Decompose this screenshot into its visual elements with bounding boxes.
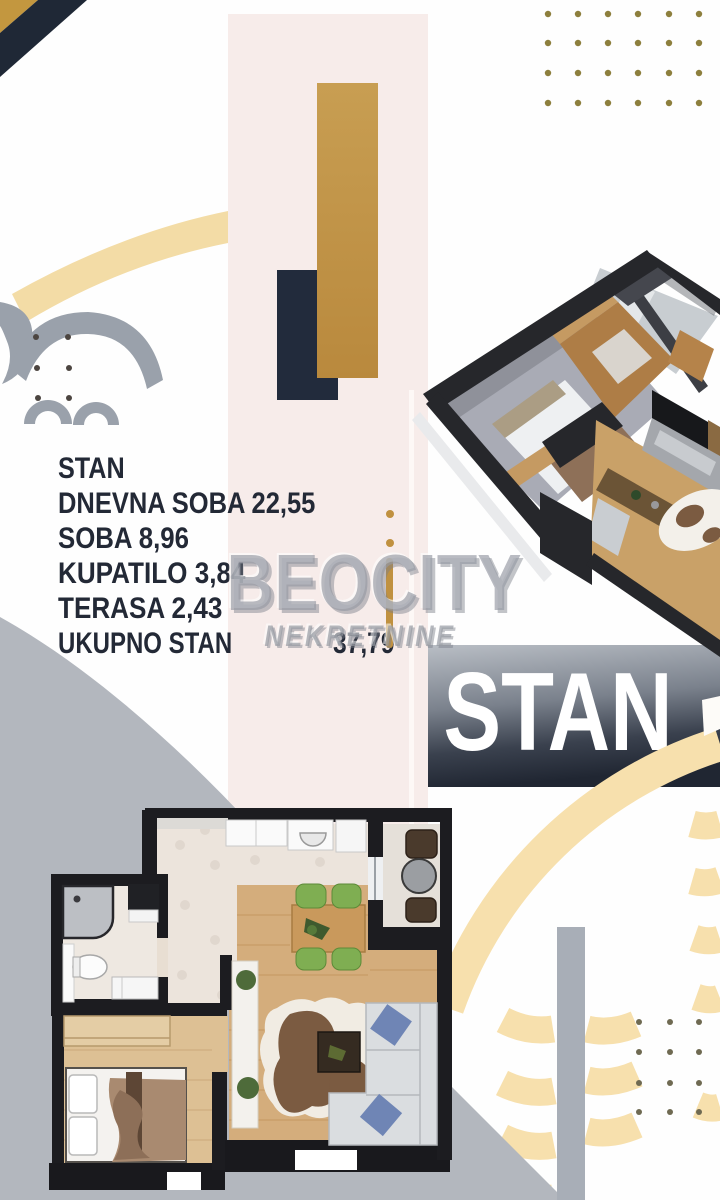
svg-text:STAN: STAN [58, 451, 125, 485]
svg-text:BEOCITY: BEOCITY [226, 537, 521, 627]
svg-text:KUPATILO 3,84: KUPATILO 3,84 [58, 556, 246, 589]
svg-text:STAN: STAN [443, 651, 672, 775]
svg-text:SOBA 8,96: SOBA 8,96 [58, 521, 189, 554]
svg-text:DNEVNA SOBA 22,55: DNEVNA SOBA 22,55 [58, 486, 315, 519]
svg-text:TERASA 2,43: TERASA 2,43 [58, 591, 222, 624]
svg-text:NEKRETNINE: NEKRETNINE [264, 619, 455, 652]
svg-text:UKUPNO STAN: UKUPNO STAN [58, 625, 232, 659]
